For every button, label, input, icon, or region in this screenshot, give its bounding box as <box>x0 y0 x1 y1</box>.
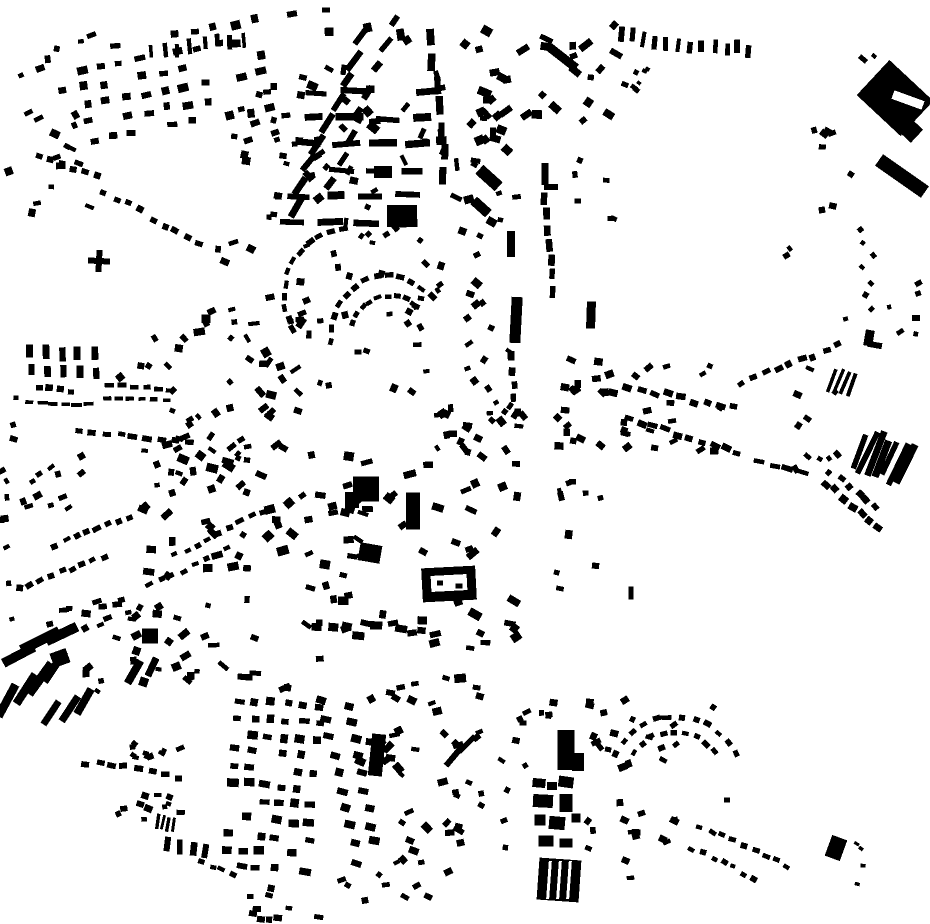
figure-ground-map <box>0 0 930 924</box>
map-background <box>0 0 930 924</box>
buildings-layer <box>0 0 930 924</box>
